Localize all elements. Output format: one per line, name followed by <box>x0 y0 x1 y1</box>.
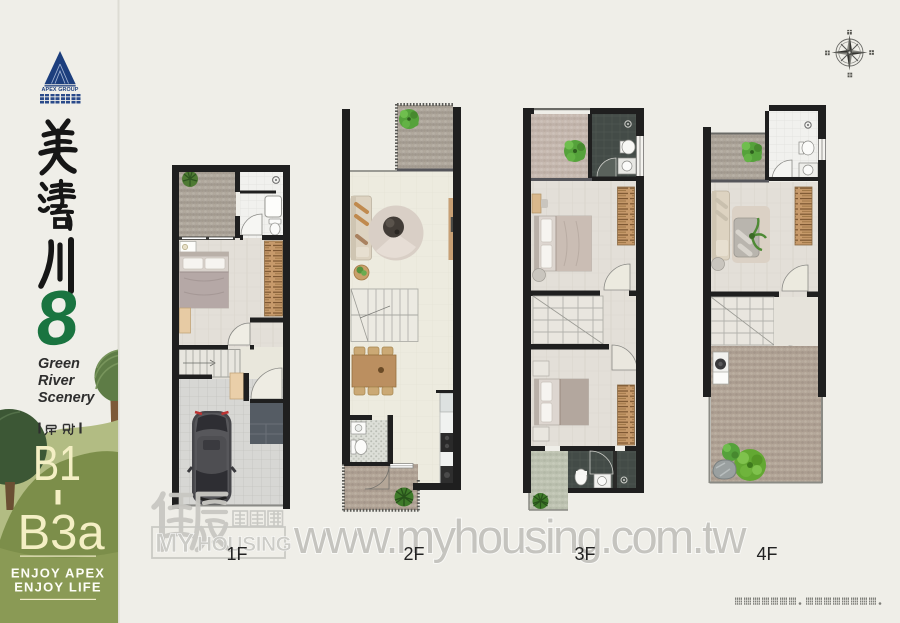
svg-text:2F: 2F <box>403 544 424 564</box>
svg-text:www.myhousing.com.tw: www.myhousing.com.tw <box>293 510 748 563</box>
svg-text:ENJOY APEX: ENJOY APEX <box>11 566 105 581</box>
svg-text:4F: 4F <box>756 544 777 564</box>
svg-text:3F: 3F <box>574 544 595 564</box>
svg-text:River: River <box>38 373 76 389</box>
svg-text:Green: Green <box>38 356 80 372</box>
svg-text:Scenery: Scenery <box>38 390 95 406</box>
svg-text:B1: B1 <box>33 437 81 491</box>
svg-text:APEX GROUP: APEX GROUP <box>42 87 79 93</box>
svg-text:B3a: B3a <box>18 506 106 560</box>
svg-text:1F: 1F <box>226 544 247 564</box>
svg-text:ENJOY LIFE: ENJOY LIFE <box>14 580 102 595</box>
svg-text:MY: MY <box>155 528 194 558</box>
